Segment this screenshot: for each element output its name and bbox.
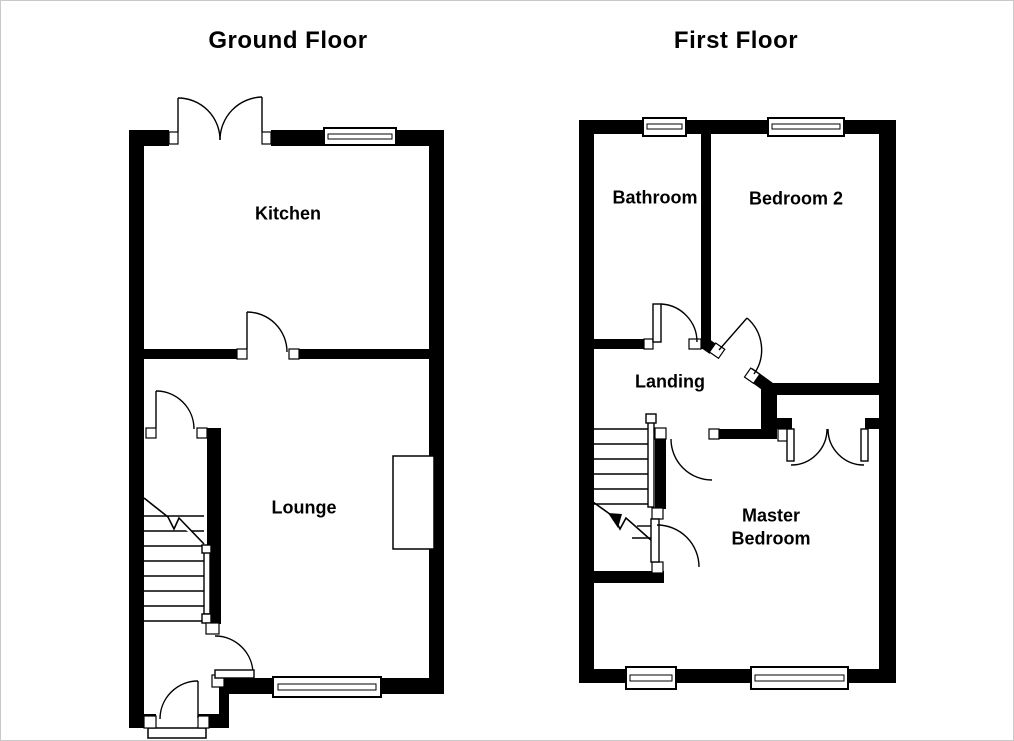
wall	[777, 418, 792, 429]
stair-door	[651, 519, 699, 567]
stair-newel	[646, 414, 656, 423]
window	[643, 118, 686, 136]
chimney-recess	[393, 456, 434, 549]
wall	[129, 130, 169, 146]
stair-handrail	[204, 550, 210, 614]
window	[626, 667, 676, 689]
wall	[655, 429, 666, 509]
door-arc	[791, 429, 827, 465]
window	[324, 128, 396, 145]
ground-floor-windows	[273, 128, 396, 697]
door-jamb	[289, 349, 299, 359]
porch-step	[148, 728, 206, 738]
door-arc	[178, 98, 220, 140]
first-floor-stairs	[593, 414, 656, 541]
door-jamb	[689, 339, 701, 349]
door-jamb	[709, 429, 719, 439]
bathroom-door	[653, 304, 697, 342]
door-jamb	[206, 623, 219, 634]
door-arc	[657, 525, 699, 567]
wall	[701, 134, 711, 349]
door-arc	[747, 318, 762, 374]
door-jamb	[652, 562, 663, 573]
door-jamb	[197, 428, 207, 438]
hall-door	[156, 391, 194, 429]
ground-floor-door-jambs	[144, 132, 299, 728]
first-floor-windows	[626, 118, 848, 689]
door-leaf	[861, 429, 868, 461]
first-floor-walls	[579, 120, 896, 683]
first-floor-plan	[579, 118, 896, 689]
door-leaf	[215, 670, 254, 678]
wall	[686, 120, 768, 134]
ground-floor-doors	[156, 97, 287, 719]
wall	[144, 349, 237, 359]
door-jamb	[198, 716, 209, 728]
bedroom-2-door	[719, 318, 762, 374]
wall	[299, 349, 429, 359]
door-arc	[156, 391, 194, 429]
wall	[879, 120, 896, 683]
door-jamb	[644, 339, 653, 349]
ground-floor-plan	[129, 97, 444, 738]
door-arc	[220, 97, 262, 140]
wall	[848, 669, 896, 683]
door-leaf	[719, 318, 747, 350]
french-doors	[178, 97, 262, 140]
door-leaf	[653, 304, 661, 342]
wall	[865, 418, 879, 429]
front-door	[160, 681, 198, 719]
wall	[594, 339, 644, 349]
floorplan-drawing	[1, 1, 1014, 741]
door-jamb	[146, 428, 156, 438]
door-jamb	[655, 428, 666, 439]
door-jamb	[237, 349, 247, 359]
door-leaf	[787, 429, 794, 461]
door-arc	[215, 636, 253, 674]
door-arc	[160, 681, 198, 719]
window	[768, 118, 844, 136]
door-arc	[828, 429, 864, 465]
ground-floor-walls	[129, 130, 444, 728]
window	[273, 677, 381, 697]
master-bedroom-door	[671, 439, 712, 480]
ground-floor-stairs	[144, 498, 211, 623]
wall	[769, 383, 879, 395]
stair-break-line	[144, 498, 204, 544]
wall-diagonal	[703, 342, 713, 349]
wall	[579, 669, 626, 683]
wall	[381, 678, 444, 694]
wall	[676, 669, 751, 683]
door-arc	[247, 312, 287, 352]
floorplan-page: Ground Floor First Floor Kitchen Lounge …	[0, 0, 1014, 741]
window	[751, 667, 848, 689]
door-jamb	[262, 132, 271, 144]
wall	[429, 130, 444, 694]
lounge-door	[215, 636, 254, 678]
wardrobe-doors	[787, 429, 868, 465]
door-jamb	[144, 716, 156, 728]
door-jamb	[169, 132, 178, 144]
wall	[579, 120, 594, 683]
door-arc	[671, 439, 712, 480]
door-arc	[661, 304, 697, 342]
door-jamb	[652, 508, 663, 519]
stair-newel	[202, 545, 211, 553]
stair-newel	[202, 614, 211, 623]
wall	[719, 429, 777, 439]
wall	[579, 120, 643, 134]
stair-break-line	[593, 502, 652, 541]
stair-handrail	[648, 421, 654, 507]
wall	[129, 130, 144, 728]
wall	[271, 130, 324, 146]
kitchen-door	[247, 312, 287, 352]
